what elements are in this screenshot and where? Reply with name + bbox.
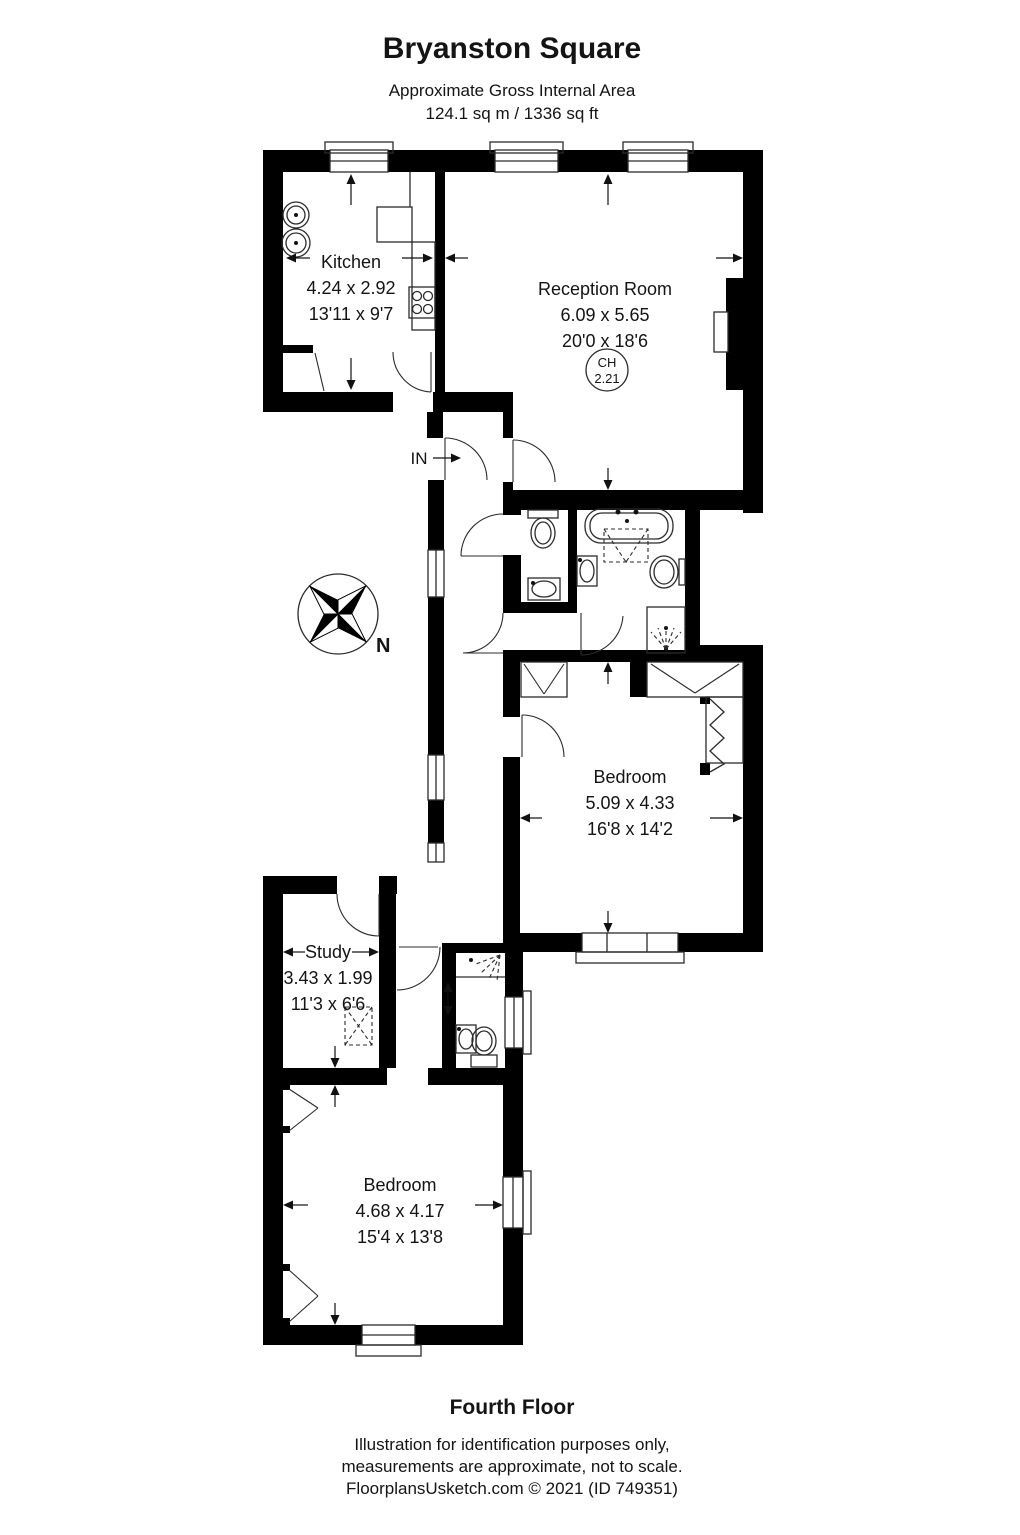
compass-north-label: N	[376, 635, 390, 657]
shower-room-basin-icon	[456, 1025, 476, 1053]
svg-text:4.68 x 4.17: 4.68 x 4.17	[355, 1201, 444, 1221]
svg-text:Study: Study	[305, 942, 351, 962]
bath-toilet-icon	[650, 556, 685, 588]
hall-window-2	[428, 755, 444, 800]
svg-text:5.09 x 4.33: 5.09 x 4.33	[585, 793, 674, 813]
kitchen-window	[325, 142, 393, 172]
room-label-study: Study 3.43 x 1.99 11'3 x 6'6	[283, 942, 372, 1014]
entry-marker: IN	[411, 449, 462, 468]
page-title: Bryanston Square	[383, 32, 641, 65]
room-label-bedroom-1: Bedroom 5.09 x 4.33 16'8 x 14'2	[585, 767, 674, 839]
disclaimer-line-3: FloorplansUsketch.com © 2021 (ID 749351)	[346, 1479, 678, 1498]
svg-text:2.21: 2.21	[594, 371, 619, 386]
shower-icon	[647, 607, 685, 653]
entry-label: IN	[411, 449, 428, 468]
svg-text:Kitchen: Kitchen	[321, 252, 381, 272]
wc-basin-icon	[528, 578, 560, 600]
room-label-reception: Reception Room 6.09 x 5.65 20'0 x 18'6 C…	[538, 279, 672, 391]
svg-text:20'0 x 18'6: 20'0 x 18'6	[562, 331, 648, 351]
svg-text:13'11 x 9'7: 13'11 x 9'7	[309, 304, 394, 324]
bedroom1-window	[576, 933, 684, 963]
svg-text:3.43 x 1.99: 3.43 x 1.99	[283, 968, 372, 988]
floorplan-page: Bryanston Square Approximate Gross Inter…	[0, 0, 1020, 1530]
svg-text:6.09 x 5.65: 6.09 x 5.65	[560, 305, 649, 325]
area-value: 124.1 sq m / 1336 sq ft	[426, 104, 599, 123]
hall-window-3	[428, 843, 444, 862]
toilet-icon	[528, 510, 558, 548]
svg-text:11'3 x 6'6: 11'3 x 6'6	[291, 994, 366, 1014]
room-label-kitchen: Kitchen 4.24 x 2.92 13'11 x 9'7	[306, 252, 395, 324]
walls	[263, 150, 763, 1345]
reception-window-1	[490, 142, 563, 172]
hall-window-1	[428, 550, 444, 597]
disclaimer-line-2: measurements are approximate, not to sca…	[341, 1457, 682, 1476]
floorplan-canvas: Bryanston Square Approximate Gross Inter…	[0, 0, 1020, 1530]
fireplace-recess	[714, 312, 728, 352]
ceiling-height-badge: CH 2.21	[586, 349, 628, 391]
disclaimer-line-1: Illustration for identification purposes…	[354, 1435, 669, 1454]
svg-text:4.24 x 2.92: 4.24 x 2.92	[306, 278, 395, 298]
area-subtitle: Approximate Gross Internal Area	[389, 81, 636, 100]
compass-icon: N	[281, 557, 394, 670]
bathtub-icon	[585, 509, 673, 543]
bedroom2-side-window	[503, 1171, 531, 1234]
svg-text:Bedroom: Bedroom	[593, 767, 666, 787]
wardrobe-icon	[706, 697, 743, 772]
shower-room-window	[505, 991, 531, 1054]
svg-text:15'4 x 13'8: 15'4 x 13'8	[357, 1227, 443, 1247]
shower-room-toilet-icon	[471, 1027, 497, 1067]
svg-text:16'8 x 14'2: 16'8 x 14'2	[587, 819, 673, 839]
reception-window-2	[623, 142, 693, 172]
floor-label: Fourth Floor	[450, 1396, 575, 1419]
shower2-icon	[456, 955, 505, 981]
svg-text:Bedroom: Bedroom	[363, 1175, 436, 1195]
svg-text:Reception Room: Reception Room	[538, 279, 672, 299]
bedroom2-bottom-window	[356, 1325, 421, 1356]
bath-rooflight	[604, 529, 648, 562]
kitchen-sink-icon	[282, 202, 310, 257]
svg-text:CH: CH	[598, 355, 617, 370]
bath-basin-icon	[577, 556, 597, 586]
room-label-bedroom-2: Bedroom 4.68 x 4.17 15'4 x 13'8	[355, 1175, 444, 1247]
